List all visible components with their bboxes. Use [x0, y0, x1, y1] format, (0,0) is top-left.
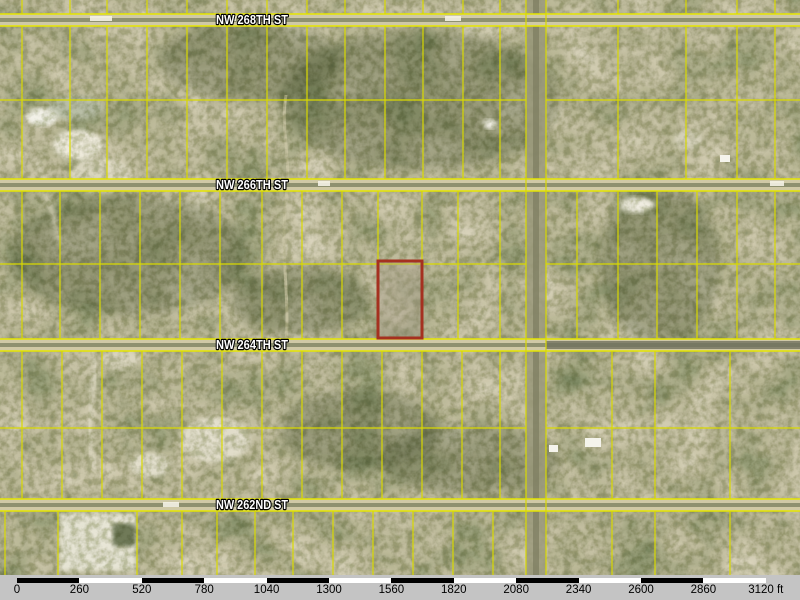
street-marking	[318, 181, 330, 186]
street-band	[0, 179, 800, 191]
street-label: NW 268TH ST	[216, 13, 288, 27]
scalebar-segment	[579, 578, 641, 583]
scalebar-segment	[391, 578, 453, 583]
scalebar-tick-label: 1040	[254, 584, 280, 596]
scalebar-segment	[142, 578, 204, 583]
scalebar-tick-label: 520	[132, 584, 151, 596]
scalebar-tick-label: 1560	[379, 584, 405, 596]
scalebar-tick-label: 0	[14, 584, 20, 596]
scalebar-segment	[516, 578, 578, 583]
street-marking	[90, 16, 112, 21]
street-marking	[163, 502, 179, 507]
vertical-road	[526, 0, 546, 575]
scalebar-segment	[703, 578, 765, 583]
scalebar-tick-label: 3120 ft	[748, 584, 783, 596]
street-marking	[445, 16, 461, 21]
scalebar-tick-label: 1820	[441, 584, 467, 596]
scalebar-tick-label: 2600	[628, 584, 654, 596]
scalebar-tick-label: 2340	[566, 584, 592, 596]
scalebar-tick-label: 1300	[316, 584, 342, 596]
scalebar-segment	[17, 578, 79, 583]
aerial-map[interactable]: NW 268TH STNW 266TH STNW 264TH STNW 262N…	[0, 0, 800, 575]
street-band	[0, 339, 800, 351]
scalebar-segment	[79, 578, 141, 583]
scalebar-tick-label: 260	[70, 584, 89, 596]
selected-parcel-highlight[interactable]	[378, 261, 422, 338]
scale-bar: 0260520780104013001560182020802340260028…	[0, 575, 800, 600]
scalebar-tick-label: 2860	[691, 584, 717, 596]
street-label: NW 266TH ST	[216, 178, 288, 192]
scalebar-segment	[204, 578, 266, 583]
street-label: NW 262ND ST	[216, 498, 288, 512]
map-viewport[interactable]: NW 268TH STNW 266TH STNW 264TH STNW 262N…	[0, 0, 800, 600]
scalebar-segment	[641, 578, 703, 583]
building	[720, 155, 730, 162]
scalebar-segment	[454, 578, 516, 583]
scalebar-tick-label: 780	[195, 584, 214, 596]
street-label: NW 264TH ST	[216, 338, 288, 352]
scalebar-tick-label: 2080	[503, 584, 529, 596]
scalebar-segment	[329, 578, 391, 583]
scalebar-segment	[267, 578, 329, 583]
street-band	[0, 499, 800, 511]
street-marking	[770, 181, 784, 186]
building	[585, 438, 601, 447]
building	[549, 445, 558, 452]
street-band	[0, 14, 800, 26]
